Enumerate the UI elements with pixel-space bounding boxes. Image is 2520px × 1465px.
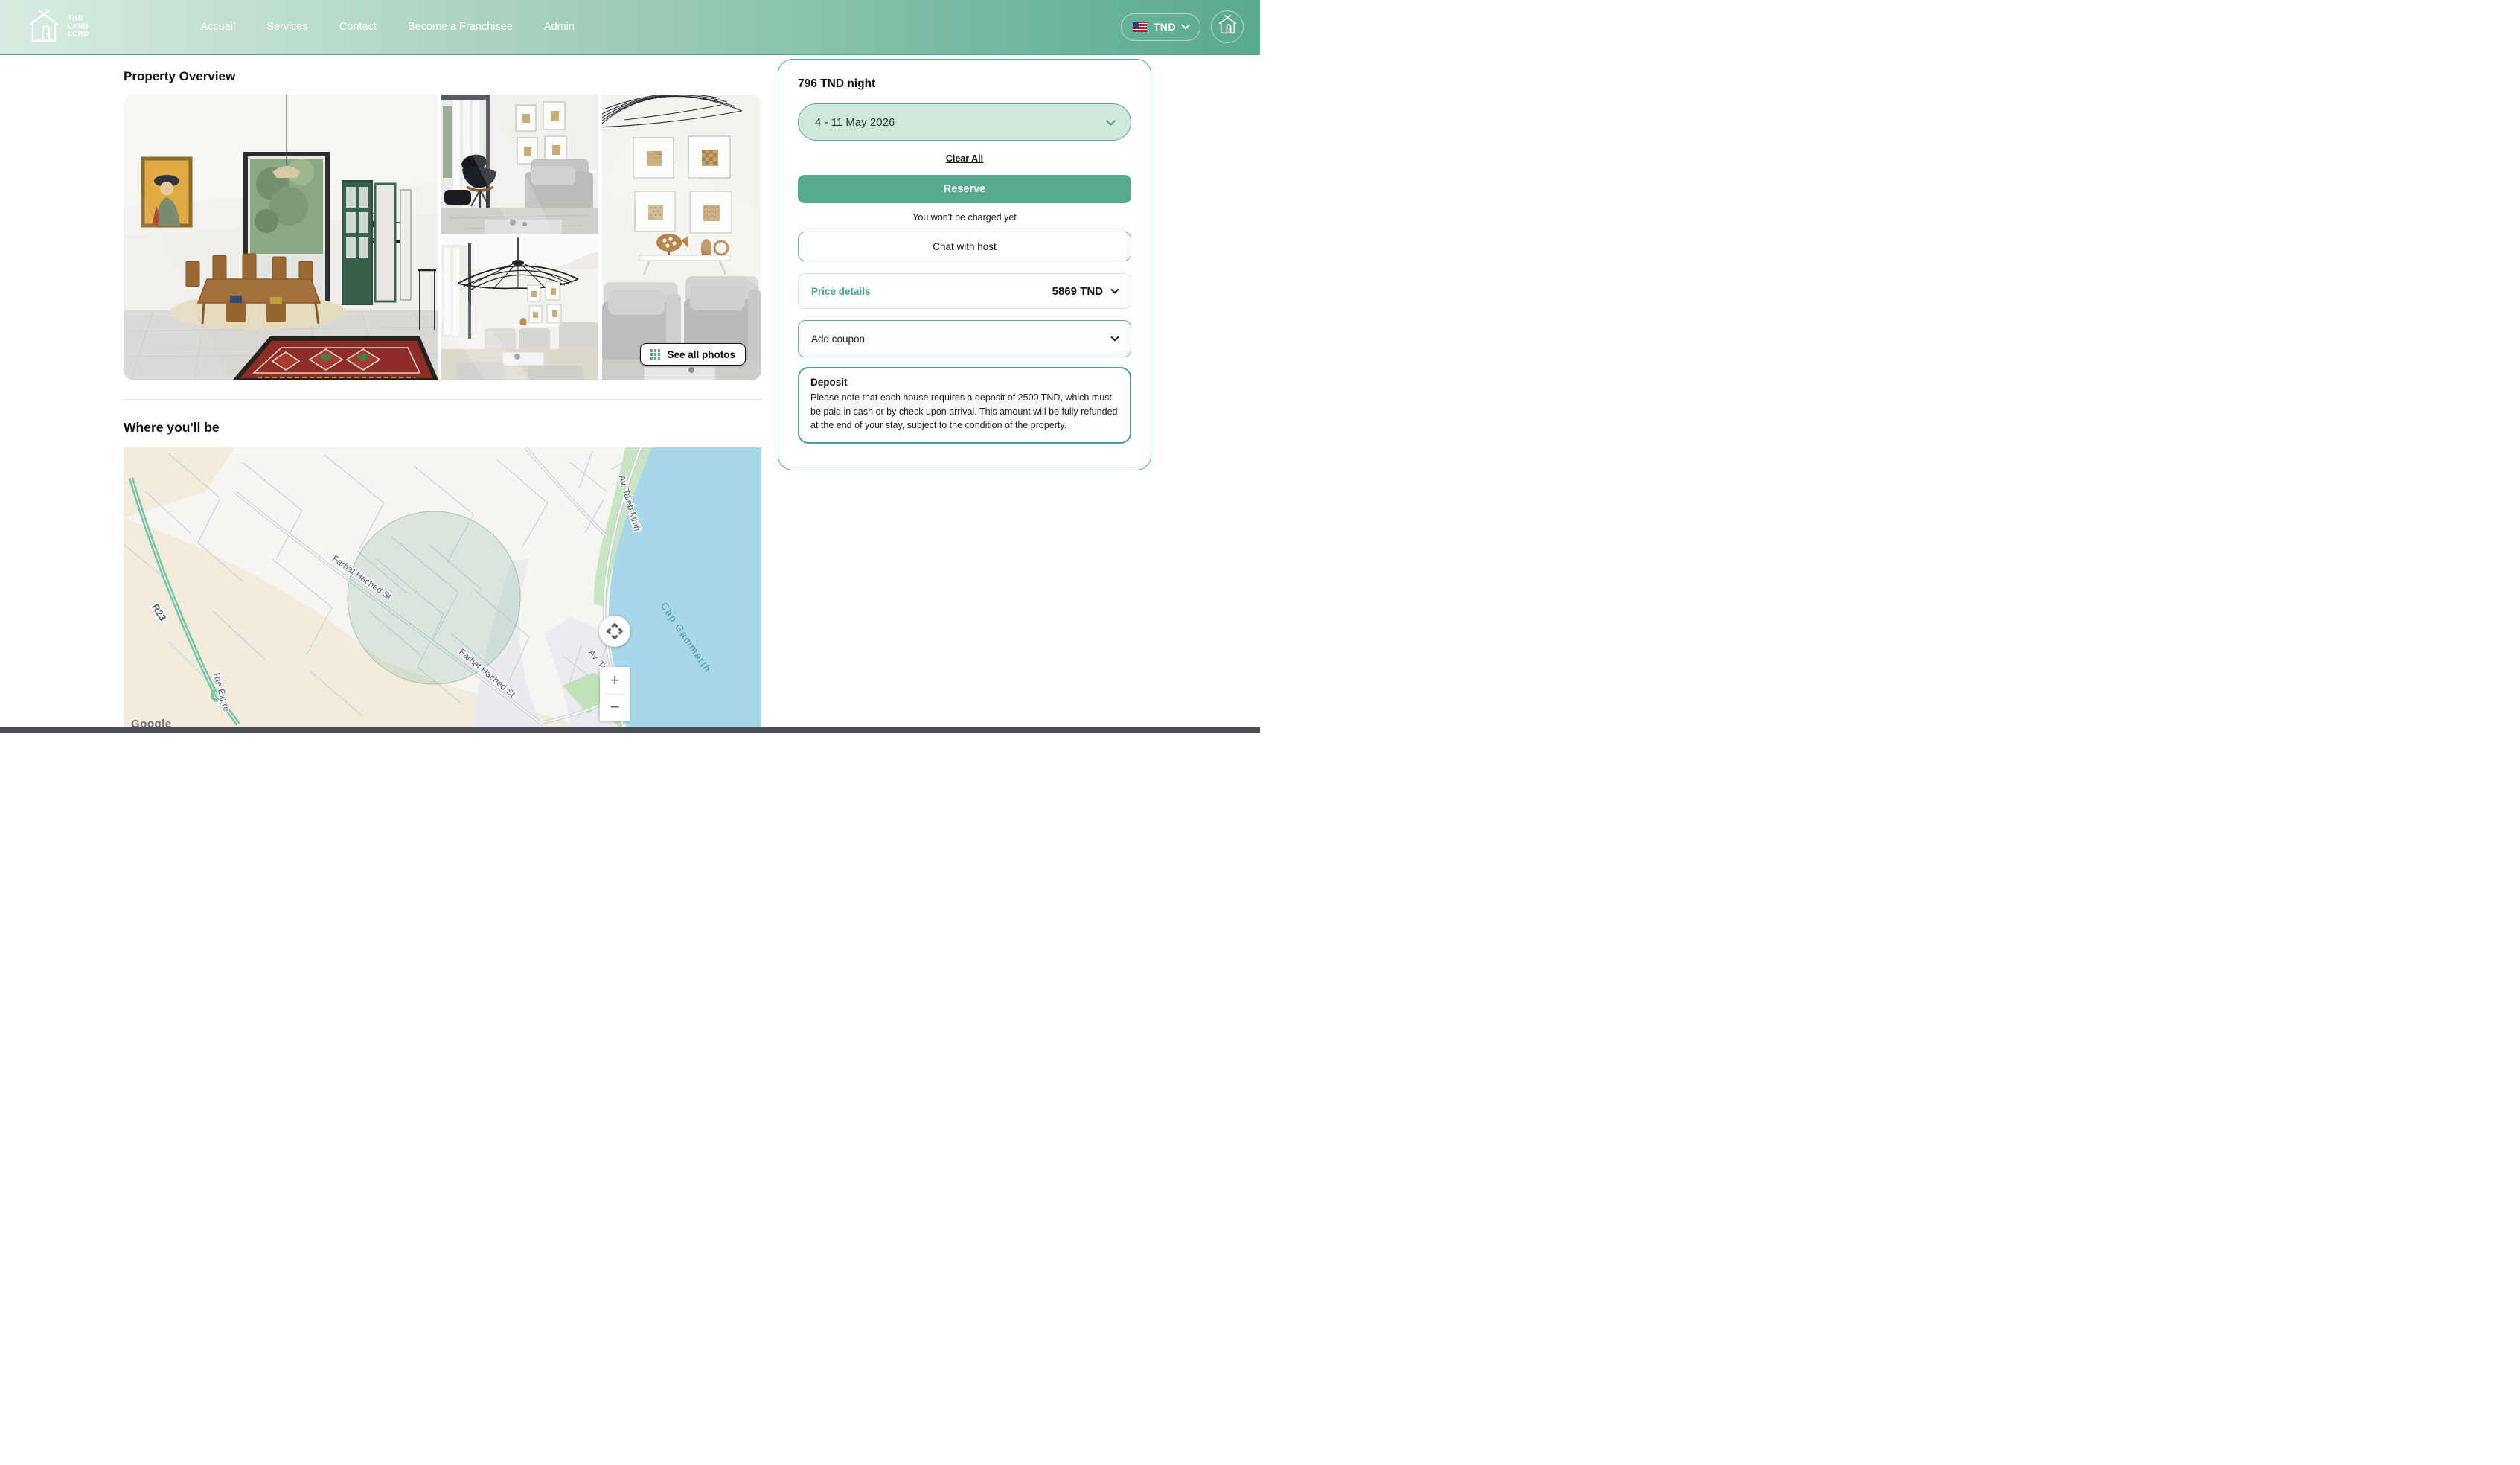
price-per-night: 796 TND night: [798, 77, 1131, 91]
date-range-value: 4 - 11 May 2026: [815, 116, 895, 129]
deposit-title: Deposit: [810, 377, 1119, 388]
where-youll-be-title: Where you'll be: [124, 420, 761, 435]
date-range-selector[interactable]: 4 - 11 May 2026: [798, 103, 1131, 141]
chevron-down-icon: [1110, 285, 1119, 293]
see-all-photos-label: See all photos: [667, 349, 735, 360]
footer-bar: [0, 727, 1260, 732]
photo-gallery-wall[interactable]: [602, 95, 761, 380]
price-details-label: Price details: [811, 286, 871, 297]
photo-pendant-room[interactable]: [441, 237, 598, 380]
deposit-notice: Deposit Please note that each house requ…: [798, 367, 1131, 444]
brand-logo[interactable]: THE LAND LORD: [27, 10, 89, 44]
chevron-down-icon: [1106, 116, 1116, 126]
main-content: Property Overview: [124, 57, 761, 727]
chevron-down-icon: [1110, 333, 1119, 341]
home-button[interactable]: [1211, 10, 1244, 43]
no-charge-note: You won't be charged yet: [798, 212, 1131, 223]
property-overview-title: Property Overview: [124, 69, 761, 84]
see-all-photos-button[interactable]: See all photos: [640, 343, 746, 366]
clear-all-link[interactable]: Clear All: [946, 153, 983, 164]
nav-item-admin[interactable]: Admin: [544, 21, 575, 33]
map-pan-control[interactable]: [599, 616, 630, 647]
reserve-button[interactable]: Reserve: [798, 175, 1131, 203]
add-coupon-label: Add coupon: [811, 333, 865, 345]
map-zoom-control: + −: [600, 667, 630, 721]
photo-living-room[interactable]: [441, 95, 598, 234]
deposit-text: Please note that each house requires a d…: [810, 391, 1119, 433]
nav-item-accueil[interactable]: Accueil: [201, 21, 236, 33]
photo-dining-room[interactable]: [124, 95, 438, 380]
currency-code: TND: [1154, 21, 1176, 33]
house-icon: [1218, 15, 1238, 39]
nav-item-services[interactable]: Services: [266, 21, 308, 33]
pan-arrows-icon: [604, 620, 626, 642]
zoom-out-button[interactable]: −: [600, 695, 630, 721]
zoom-in-button[interactable]: +: [600, 667, 630, 694]
booking-card: 796 TND night 4 - 11 May 2026 Clear All …: [778, 59, 1151, 470]
chevron-down-icon: [1181, 21, 1189, 29]
header: THE LAND LORD Accueil Services Contact B…: [0, 0, 1260, 55]
nav-item-franchisee[interactable]: Become a Franchisee: [408, 21, 513, 33]
nav-item-contact[interactable]: Contact: [339, 21, 377, 33]
location-map[interactable]: Farhat Hached St Farhat Hached St Av. Ta…: [124, 447, 761, 727]
chat-with-host-button[interactable]: Chat with host: [798, 232, 1131, 261]
house-logo-icon: [27, 10, 61, 44]
section-divider: [124, 399, 761, 400]
photo-gallery: See all photos: [124, 95, 761, 380]
us-flag-icon: [1133, 22, 1147, 32]
gallery-middle-column: [441, 95, 598, 380]
grid-icon: [650, 349, 661, 360]
currency-selector[interactable]: TND: [1121, 13, 1200, 41]
price-total: 5869 TND: [1052, 285, 1103, 298]
main-nav: Accueil Services Contact Become a Franch…: [201, 21, 575, 33]
add-coupon-toggle[interactable]: Add coupon: [798, 320, 1131, 357]
brand-name: THE LAND LORD: [68, 15, 89, 39]
price-details-toggle[interactable]: Price details 5869 TND: [798, 273, 1131, 309]
